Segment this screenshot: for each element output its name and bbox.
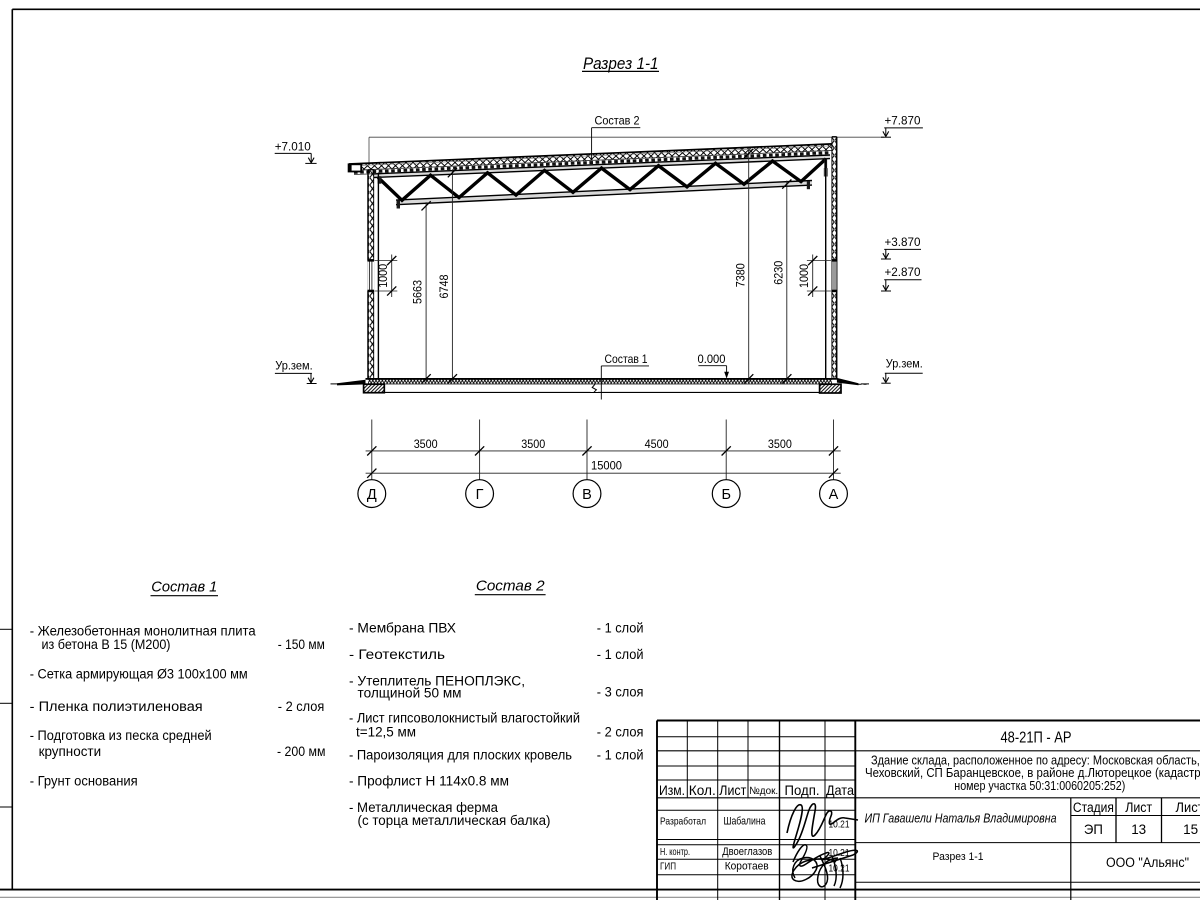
svg-text:- 3 слоя: - 3 слоя: [597, 685, 644, 700]
svg-text:Состав 1: Состав 1: [605, 352, 648, 366]
svg-text:- Подготовка из песка средней: - Подготовка из песка средней: [30, 728, 212, 743]
svg-text:В: В: [582, 487, 592, 503]
svg-text:крупности: крупности: [39, 744, 102, 759]
svg-text:Шабалина: Шабалина: [724, 816, 767, 828]
svg-text:3500: 3500: [768, 437, 792, 451]
svg-text:- 2 слоя: - 2 слоя: [597, 724, 644, 739]
svg-text:- Пароизоляция для плоских кро: - Пароизоляция для плоских кровель: [349, 748, 572, 763]
svg-text:- Сетка армирующая Ø3 100х100: - Сетка армирующая Ø3 100х100 мм: [30, 666, 248, 681]
svg-text:номер участка 50:31:0060205:25: номер участка 50:31:0060205:252): [954, 778, 1125, 793]
svg-text:Лист: Лист: [1125, 800, 1152, 815]
svg-text:- Железобетонная монолитная п: - Железобетонная монолитная плита: [30, 623, 257, 638]
svg-text:№док.: №док.: [749, 785, 778, 797]
svg-text:1000: 1000: [799, 264, 811, 288]
svg-text:15: 15: [1183, 821, 1198, 837]
svg-text:ГИП: ГИП: [660, 861, 676, 873]
svg-text:(с торца металлическая балка): (с торца металлическая балка): [358, 813, 551, 828]
svg-text:48-21П - АР: 48-21П - АР: [1001, 729, 1072, 746]
svg-text:Кол.: Кол.: [689, 782, 716, 798]
svg-text:Лист: Лист: [719, 782, 747, 798]
svg-text:А: А: [829, 487, 839, 503]
svg-text:ЭП: ЭП: [1084, 821, 1103, 837]
svg-text:Стадия: Стадия: [1073, 800, 1114, 815]
svg-text:- 200 мм: - 200 мм: [277, 744, 326, 759]
svg-text:Разрез 1-1: Разрез 1-1: [583, 55, 659, 73]
svg-text:6230: 6230: [773, 261, 785, 285]
svg-text:13: 13: [1131, 821, 1146, 837]
svg-text:Разрез 1-1: Разрез 1-1: [933, 851, 984, 863]
svg-text:3500: 3500: [414, 437, 438, 451]
svg-text:t=12,5 мм: t=12,5 мм: [356, 724, 416, 739]
svg-text:0.000: 0.000: [698, 352, 726, 366]
svg-text:+2.870: +2.870: [885, 265, 921, 279]
svg-text:Состав 1: Состав 1: [151, 578, 217, 595]
svg-text:- Лист гипсоволокнистый влагос: - Лист гипсоволокнистый влагостойкий: [349, 710, 580, 725]
svg-text:из бетона В 15 (М200): из бетона В 15 (М200): [42, 637, 171, 652]
svg-text:ООО "Альянс": ООО "Альянс": [1106, 855, 1189, 870]
svg-text:6748: 6748: [439, 275, 451, 299]
svg-text:3500: 3500: [521, 437, 545, 451]
svg-text:Н. контр.: Н. контр.: [660, 846, 690, 858]
svg-text:ИП Гавашели Наталья Владимиров: ИП Гавашели Наталья Владимировна: [865, 812, 1057, 826]
svg-text:Разработал: Разработал: [660, 816, 706, 828]
svg-text:толщиной 50 мм: толщиной 50 мм: [358, 685, 462, 700]
svg-text:Листов: Листов: [1176, 800, 1200, 815]
svg-text:Подп.: Подп.: [785, 782, 820, 798]
svg-text:Г: Г: [476, 487, 484, 503]
svg-text:15000: 15000: [591, 459, 622, 473]
svg-text:- 1 слой: - 1 слой: [597, 621, 644, 636]
svg-text:Дата: Дата: [826, 782, 854, 798]
svg-text:10.21: 10.21: [829, 863, 850, 875]
svg-text:- 1 слой: - 1 слой: [597, 748, 644, 763]
svg-text:- Грунт основания: - Грунт основания: [30, 774, 138, 789]
svg-text:Ур.зем.: Ур.зем.: [275, 358, 313, 372]
svg-text:- Пленка полиэтиленовая: - Пленка полиэтиленовая: [30, 699, 203, 714]
svg-text:- 1 слой: - 1 слой: [597, 647, 644, 662]
svg-text:Ур.зем.: Ур.зем.: [886, 356, 923, 370]
svg-text:Двоеглазов: Двоеглазов: [722, 846, 772, 858]
svg-text:1000: 1000: [378, 264, 390, 288]
svg-text:Д: Д: [367, 487, 377, 503]
svg-text:7380: 7380: [735, 263, 747, 287]
svg-text:+3.870: +3.870: [885, 235, 921, 249]
svg-text:+7.010: +7.010: [275, 140, 311, 154]
svg-text:- Геотекстиль: - Геотекстиль: [349, 647, 445, 662]
svg-text:Изм.: Изм.: [659, 782, 685, 798]
svg-text:- Мембрана ПВХ: - Мембрана ПВХ: [349, 621, 456, 636]
svg-text:Состав 2: Состав 2: [476, 577, 545, 594]
svg-text:Коротаев: Коротаев: [725, 861, 769, 873]
svg-text:- Профлист Н 114х0.8 мм: - Профлист Н 114х0.8 мм: [349, 774, 509, 789]
svg-text:- 150 мм: - 150 мм: [278, 637, 325, 652]
svg-text:+7.870: +7.870: [885, 114, 921, 128]
svg-text:5663: 5663: [413, 280, 425, 304]
svg-text:Б: Б: [721, 487, 731, 503]
svg-text:4500: 4500: [645, 437, 669, 451]
svg-text:- 2 слоя: - 2 слоя: [278, 699, 325, 714]
svg-text:Состав 2: Состав 2: [595, 114, 640, 128]
